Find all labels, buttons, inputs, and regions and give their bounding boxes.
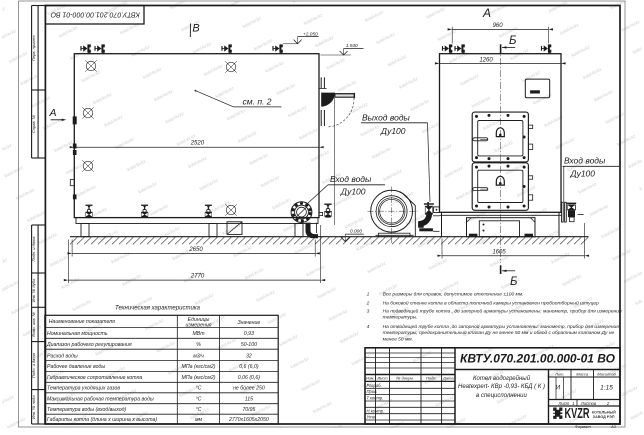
svg-text:Разраб.: Разраб. [367,383,382,388]
svg-text:температуры, предохранительный: температуры, предохранительный клапан Ду… [383,329,615,336]
svg-text:1: 1 [367,292,370,298]
svg-text:Масштаб: Масштаб [597,372,616,377]
svg-text:4: 4 [367,324,370,330]
svg-text:КВТУ.070.201.00.000-01 ВО: КВТУ.070.201.00.000-01 ВО [50,10,140,17]
svg-text:0,6 (6,0): 0,6 (6,0) [239,364,259,370]
svg-text:В: В [192,23,199,35]
svg-text:в специсполнении: в специсполнении [476,393,527,399]
svg-text:960: 960 [493,23,504,29]
svg-text:2650: 2650 [188,247,203,253]
svg-text:м3/ч: м3/ч [193,353,204,359]
svg-text:Б: Б [510,276,518,288]
svg-text:2: 2 [366,300,370,306]
svg-text:Гидравлическое сопротивление к: Гидравлическое сопротивление котла [47,375,142,381]
svg-text:Все размеры для справок, допус: Все размеры для справок, допустимое откл… [383,292,524,298]
svg-text:температуры.: температуры. [383,316,418,321]
svg-text:0,06 (0,6): 0,06 (0,6) [238,375,260,381]
svg-text:Техническая характеристика: Техническая характеристика [115,306,201,312]
svg-text:2520: 2520 [190,140,205,146]
svg-text:Перв. примен.: Перв. примен. [31,34,36,61]
svg-text:2770х1605х2050: 2770х1605х2050 [228,417,269,423]
svg-text:И: И [555,384,560,391]
svg-text:Температура уходящих газов: Температура уходящих газов [47,386,120,392]
svg-text:3: 3 [367,308,370,314]
svg-text:Вход воды: Вход воды [330,174,372,184]
svg-text:50-100: 50-100 [241,342,257,348]
svg-text:Рабочее давление воды: Рабочее давление воды [47,364,105,370]
svg-text:Котел водогрейный: Котел водогрейный [473,375,531,382]
svg-text:32: 32 [246,353,252,359]
svg-text:Подп. и дата: Подп. и дата [31,236,36,262]
svg-text:Инв. № дубл.: Инв. № дубл. [31,278,36,303]
svg-text:Heatexpert- КВр -0,93- КБД ( К: Heatexpert- КВр -0,93- КБД ( К ) [458,384,545,390]
svg-text:Ду100: Ду100 [380,126,406,136]
svg-text:Ду100: Ду100 [570,169,596,179]
svg-text:менее 50 мм.: менее 50 мм. [383,336,413,342]
svg-text:%: % [196,342,201,348]
svg-text:№ докум.: № докум. [396,376,414,381]
svg-text:1.930: 1.930 [346,43,358,49]
svg-text:1605: 1605 [492,249,506,255]
svg-text:Номинальная мощность: Номинальная мощность [47,331,108,337]
svg-text:Значение: Значение [238,320,261,326]
svg-text:KVZR: KVZR [565,406,590,422]
svg-text:Выход воды: Выход воды [362,113,411,123]
svg-text:не более 250: не более 250 [233,386,265,392]
svg-text:МВт: МВт [192,331,205,337]
svg-text:Расход воды: Расход воды [47,353,78,359]
svg-text:Утв.: Утв. [367,415,377,420]
svg-text:Дата: Дата [442,376,454,381]
svg-text:Подп.: Подп. [426,376,437,381]
svg-text:115: 115 [245,397,253,403]
svg-text:Максимальная рабочая температу: Максимальная рабочая температура воды [47,397,154,403]
svg-text:А: А [482,6,491,20]
svg-text:КОТЕЛЬНЫЙ: КОТЕЛЬНЫЙ [592,410,616,414]
svg-text:°С: °С [196,407,202,413]
svg-text:Ду100: Ду100 [340,187,366,197]
svg-text:Масса: Масса [576,372,589,377]
svg-text:МПа (кгс/см2): МПа (кгс/см2) [182,375,216,381]
svg-text:Пров.: Пров. [367,389,378,394]
svg-text:0,93: 0,93 [244,331,254,337]
svg-text:70/95: 70/95 [242,407,255,413]
svg-text:0.000: 0.000 [350,228,362,234]
svg-text:Габариты котла (длина х ширина: Габариты котла (длина х ширина х высота) [47,417,157,423]
svg-text:Лист: Лист [376,376,388,381]
svg-text:КВТУ.070.201.00.000-01 ВО: КВТУ.070.201.00.000-01 ВО [460,351,616,365]
svg-text:Диапазон рабочего регулировани: Диапазон рабочего регулирования [46,342,132,348]
svg-text:Изм.: Изм. [366,376,375,381]
svg-text:2770: 2770 [190,274,205,280]
svg-text:МПа (кгс/см2): МПа (кгс/см2) [182,364,216,370]
svg-text:Б: Б [509,35,517,47]
svg-text:Вход воды: Вход воды [564,155,606,165]
svg-text:°С: °С [196,386,202,392]
svg-text:Взам. инв. №: Взам. инв. № [31,311,36,336]
svg-text:А3: А3 [610,424,617,429]
svg-text:ЗАВОД РЭП: ЗАВОД РЭП [593,415,615,419]
svg-text:Температура воды (вход/выход): Температура воды (вход/выход) [47,407,126,413]
svg-text:На боковой стенке котла в обла: На боковой стенке котла в области топочн… [383,299,599,306]
svg-text:Наименование показателя: Наименование показателя [49,319,115,325]
svg-text:см. п. 2: см. п. 2 [243,96,272,106]
svg-text:На подводящей трубе котла ,: На подводящей трубе котла , до запорной … [383,307,622,314]
svg-text:Формат: Формат [575,424,592,429]
svg-text:1:15: 1:15 [600,385,613,392]
svg-text:Справ. №: Справ. № [31,114,36,133]
svg-text:Н.контр.: Н.контр. [367,408,385,413]
svg-text:°С: °С [196,397,202,403]
svg-text:+2,050: +2,050 [303,31,318,37]
svg-text:Инв. № подл.: Инв. № подл. [31,394,36,419]
svg-text:Т.контр.: Т.контр. [367,396,384,401]
svg-text:мм: мм [195,417,203,423]
svg-text:Лит.: Лит. [554,372,564,377]
svg-text:Подп. и дата: Подп. и дата [31,352,36,378]
svg-text:измерения: измерения [186,323,212,329]
svg-text:А: А [48,107,56,119]
svg-text:1260: 1260 [479,58,493,64]
svg-text:На отводящей трубе котла ,до з: На отводящей трубе котла ,до запорной ар… [383,323,620,330]
